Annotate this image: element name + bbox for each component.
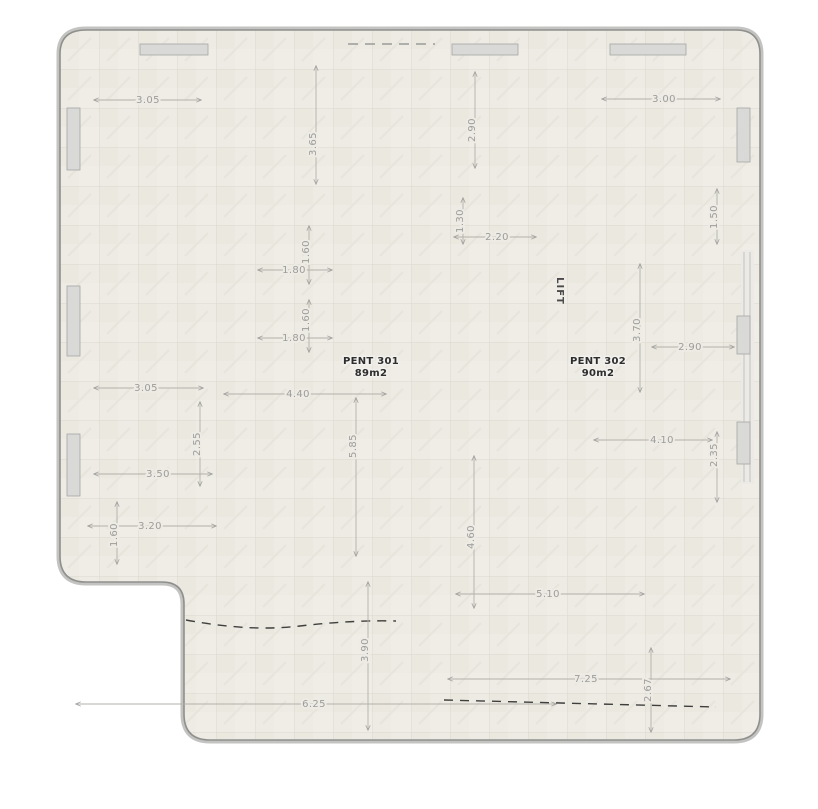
dim-label: 7.25: [574, 674, 598, 685]
dim-label: 3.70: [632, 318, 643, 342]
unit-name-pent301: PENT 301: [343, 356, 399, 367]
lift-label: LIFT: [554, 277, 565, 305]
dim-label: 1.30: [455, 209, 466, 233]
dim-label: 1.60: [109, 523, 120, 547]
dim-label: 1.50: [709, 205, 720, 229]
dim-label: 2.35: [709, 443, 720, 467]
dim-label: 5.85: [348, 434, 359, 458]
dim-label: 4.10: [650, 435, 674, 446]
dim-label: 5.10: [536, 589, 560, 600]
dim-label: 3.65: [308, 132, 319, 156]
floor-plan-drawing: 3.05 3.65 2.90 3.00 3.05 1.80 1.60 1.80 …: [0, 0, 818, 809]
unit-area-pent301: 89m2: [355, 368, 388, 379]
dim-label: 1.80: [282, 333, 306, 344]
dim-label: 2.55: [192, 432, 203, 456]
floor-plan: 3.05 3.65 2.90 3.00 3.05 1.80 1.60 1.80 …: [0, 0, 818, 809]
unit-name-pent302: PENT 302: [570, 356, 626, 367]
dim-label: 3.05: [134, 383, 158, 394]
unit-area-pent302: 90m2: [582, 368, 615, 379]
dim-label: 3.05: [136, 95, 160, 106]
dim-label: 1.60: [301, 240, 312, 264]
dim-label: 3.20: [138, 521, 162, 532]
dim-label: 4.40: [286, 389, 310, 400]
dim-label: 3.90: [360, 638, 371, 662]
dim-label: 1.80: [282, 265, 306, 276]
dim-label: 6.25: [302, 699, 326, 710]
dim-label: 4.60: [466, 525, 477, 549]
dim-label: 2.67: [643, 678, 654, 702]
dim-label: 3.50: [146, 469, 170, 480]
dim-label: 3.00: [652, 94, 676, 105]
dim-label: 2.90: [467, 118, 478, 142]
dim-label: 1.60: [301, 308, 312, 332]
dim-label: 2.90: [678, 342, 702, 353]
dim-label: 2.20: [485, 232, 509, 243]
